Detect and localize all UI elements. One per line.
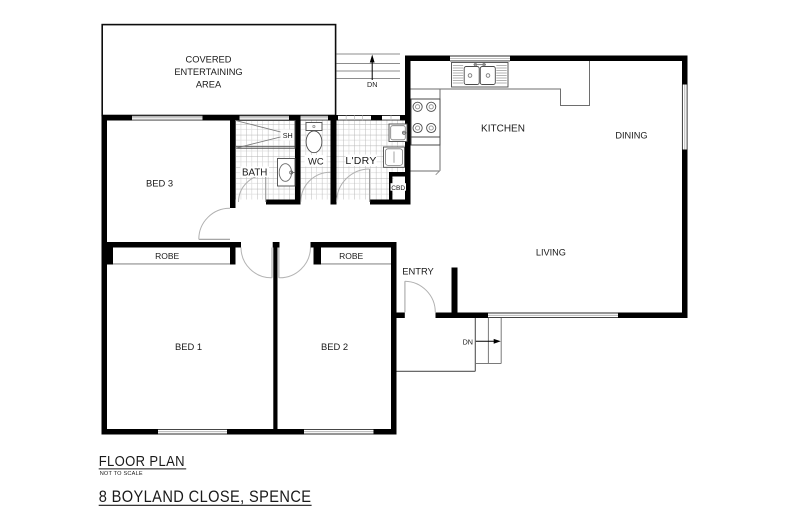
svg-text:L'DRY: L'DRY (345, 155, 376, 167)
svg-text:DINING: DINING (615, 131, 647, 141)
svg-text:SH: SH (283, 131, 293, 140)
svg-text:ROBE: ROBE (339, 251, 363, 261)
svg-text:FLOOR PLAN: FLOOR PLAN (99, 453, 185, 469)
svg-text:ENTRY: ENTRY (402, 266, 434, 277)
svg-text:WC: WC (308, 156, 324, 167)
svg-text:ENTERTAINING: ENTERTAINING (174, 67, 242, 77)
svg-text:COVERED: COVERED (186, 54, 232, 64)
svg-text:CBD: CBD (391, 185, 405, 192)
svg-text:NOT TO SCALE: NOT TO SCALE (100, 471, 143, 477)
svg-text:BED 3: BED 3 (146, 178, 173, 189)
svg-text:BATH: BATH (242, 167, 267, 178)
svg-text:DN: DN (367, 80, 377, 89)
svg-text:BED 1: BED 1 (175, 341, 202, 352)
svg-text:AREA: AREA (196, 79, 222, 89)
svg-text:KITCHEN: KITCHEN (481, 123, 525, 134)
svg-text:8 BOYLAND CLOSE, SPENCE: 8 BOYLAND CLOSE, SPENCE (99, 488, 312, 506)
svg-text:DN: DN (463, 337, 473, 346)
svg-text:BED 2: BED 2 (321, 341, 348, 352)
svg-text:ROBE: ROBE (155, 251, 179, 261)
svg-text:LIVING: LIVING (536, 248, 566, 258)
